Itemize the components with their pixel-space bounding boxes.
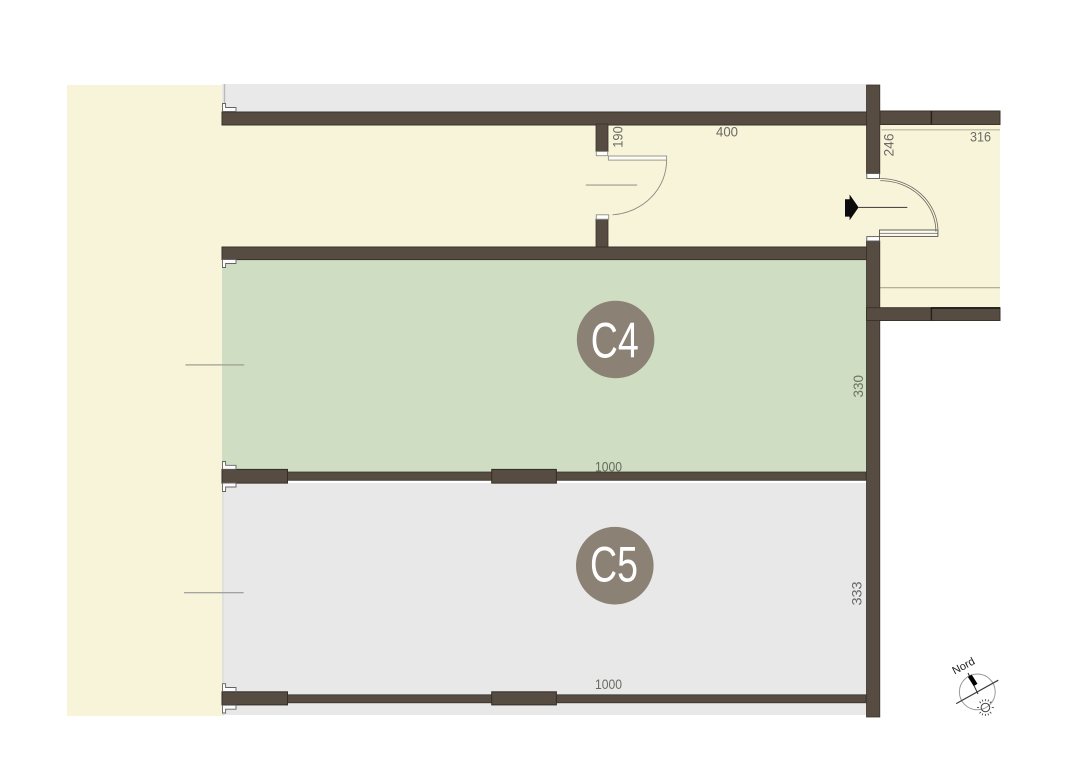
svg-text:C5: C5 (590, 537, 638, 593)
svg-text:C4: C4 (591, 312, 639, 368)
svg-text:1000: 1000 (595, 459, 622, 475)
svg-text:400: 400 (716, 124, 738, 140)
svg-text:316: 316 (970, 129, 991, 145)
svg-text:330: 330 (850, 375, 866, 398)
svg-text:333: 333 (849, 581, 865, 605)
svg-text:190: 190 (610, 126, 626, 148)
svg-text:1000: 1000 (595, 676, 622, 692)
svg-text:246: 246 (881, 133, 897, 156)
